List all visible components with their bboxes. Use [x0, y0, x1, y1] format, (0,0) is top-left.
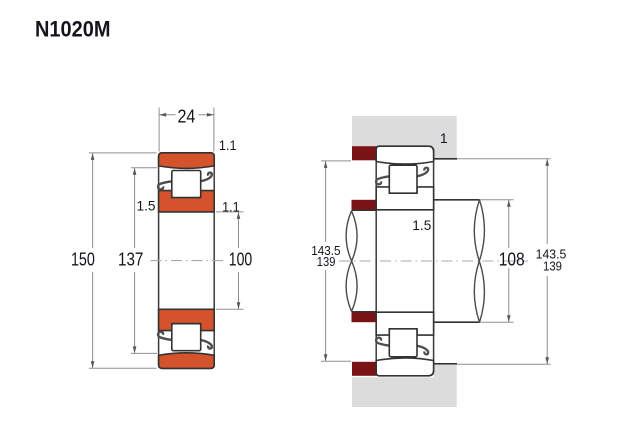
svg-text:1.5: 1.5 [412, 217, 431, 233]
svg-text:1: 1 [440, 130, 448, 146]
svg-text:1.5: 1.5 [137, 198, 156, 214]
svg-text:N1020M: N1020M [35, 16, 111, 41]
svg-text:100: 100 [229, 250, 252, 270]
svg-text:108: 108 [499, 249, 525, 269]
svg-text:139: 139 [543, 258, 562, 273]
svg-text:139: 139 [317, 254, 336, 269]
svg-text:1.1: 1.1 [219, 137, 237, 153]
svg-text:24: 24 [177, 107, 195, 127]
svg-text:150: 150 [71, 250, 95, 270]
svg-text:1.1: 1.1 [222, 199, 240, 215]
svg-text:137: 137 [118, 250, 143, 270]
